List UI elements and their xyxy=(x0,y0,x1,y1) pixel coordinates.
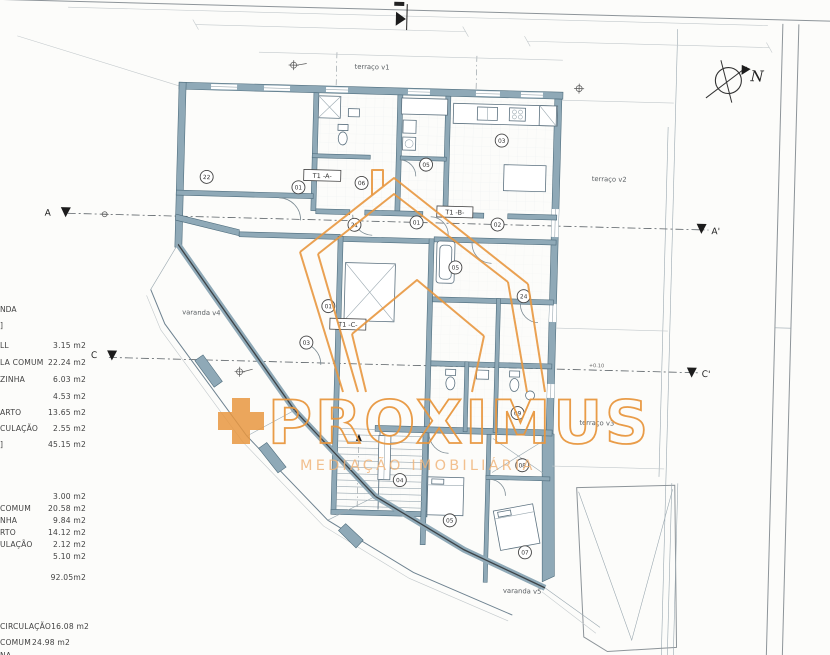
room-bubble: 02 xyxy=(491,218,504,231)
section-label-a-prime: A' xyxy=(711,227,720,237)
svg-text:01: 01 xyxy=(325,304,333,310)
svg-text:T1 -B-: T1 -B- xyxy=(444,208,465,217)
floor-plan-drawing: A A' C C' +0.10 xyxy=(0,0,830,655)
svg-text:04: 04 xyxy=(396,478,404,484)
bed xyxy=(427,477,464,516)
schedule-row: LL3.15 m2 xyxy=(0,341,86,350)
schedule-row: 5.10 m2 xyxy=(0,552,86,561)
label-varanda-v5: varanda v5 xyxy=(503,587,542,596)
north-label: N xyxy=(749,67,764,85)
svg-text:05: 05 xyxy=(452,266,460,272)
label-varanda-v4: varanda v4 xyxy=(182,308,221,317)
room-bubble: 01 xyxy=(292,181,305,194)
watermark-tagline: MEDIAÇÃO IMOBILIÁRIA xyxy=(300,457,536,474)
room-bubble: 06 xyxy=(355,176,368,189)
room-bubble: 03 xyxy=(495,134,508,147)
schedule-row: NA xyxy=(0,651,70,655)
schedule-bracket: ] xyxy=(0,321,3,330)
svg-text:02: 02 xyxy=(494,223,502,229)
schedule-row: COMUM20.58 m2 xyxy=(0,504,86,513)
schedule-row: 4.53 m2 xyxy=(0,392,86,401)
svg-text:05: 05 xyxy=(422,163,430,169)
svg-text:T1 -A-: T1 -A- xyxy=(312,172,333,181)
room-bubble: 01 xyxy=(410,216,423,229)
schedule-row: ZINHA6.03 m2 xyxy=(0,375,86,384)
schedule-row: CIRCULAÇÃO16.08 m2 xyxy=(0,622,70,631)
schedule-total-row: 92.05m2 xyxy=(0,573,86,582)
svg-text:03: 03 xyxy=(303,341,311,347)
schedule-row: 3.00 m2 xyxy=(0,492,86,501)
svg-text:22: 22 xyxy=(203,175,211,181)
svg-text:03: 03 xyxy=(498,139,506,145)
schedule-heading-fragment: NDA xyxy=(0,305,17,314)
svg-text:24: 24 xyxy=(520,294,528,300)
svg-text:07: 07 xyxy=(521,550,529,556)
bottom-right-lot xyxy=(572,481,681,655)
room-bubble: 07 xyxy=(518,546,531,559)
schedule-row: ARTO13.65 m2 xyxy=(0,408,86,417)
svg-text:01: 01 xyxy=(413,221,421,227)
svg-text:01: 01 xyxy=(295,185,303,191)
schedule-row: NHA9.84 m2 xyxy=(0,516,86,525)
room-bubble: 05 xyxy=(419,158,432,171)
room-bubble: 05 xyxy=(443,514,456,527)
svg-text:06: 06 xyxy=(358,181,366,187)
section-line-c: C C' +0.10 xyxy=(91,350,711,380)
schedule-row: COMUM24.98 m2 xyxy=(0,638,70,647)
schedule-row: ULAÇÃO2.12 m2 xyxy=(0,540,86,549)
bed xyxy=(493,504,540,551)
label-terraco-v1: terraço v1 xyxy=(355,63,390,72)
unit-label: T1 -C- xyxy=(330,318,366,330)
unit-label: T1 -A- xyxy=(304,169,341,181)
area-schedule: NDA ] LL3.15 m2 LA COMUM22.24 m2 ZINHA6.… xyxy=(0,0,95,655)
watermark-brand: PROXIMUS xyxy=(268,388,651,458)
schedule-row: CULAÇÃO2.55 m2 xyxy=(0,424,86,433)
room-bubble: 03 xyxy=(300,336,313,349)
schedule-row: LA COMUM22.24 m2 xyxy=(0,358,86,367)
level-annotation: +0.10 xyxy=(589,363,604,369)
north-arrow: N xyxy=(706,60,765,104)
watermark-plus-icon xyxy=(218,398,264,444)
schedule-total-row: ]45.15 m2 xyxy=(0,440,86,449)
label-terraco-v2: terraço v2 xyxy=(592,175,627,184)
schedule-row: RTO14.12 m2 xyxy=(0,528,86,537)
room-bubble: 04 xyxy=(393,473,406,486)
room-bubble: 22 xyxy=(200,170,213,183)
room-bubble: 05 xyxy=(449,261,462,274)
scanned-floor-plan-page: A A' C C' +0.10 xyxy=(0,0,830,655)
section-label-c-prime: C' xyxy=(702,370,711,380)
svg-text:05: 05 xyxy=(446,518,454,524)
